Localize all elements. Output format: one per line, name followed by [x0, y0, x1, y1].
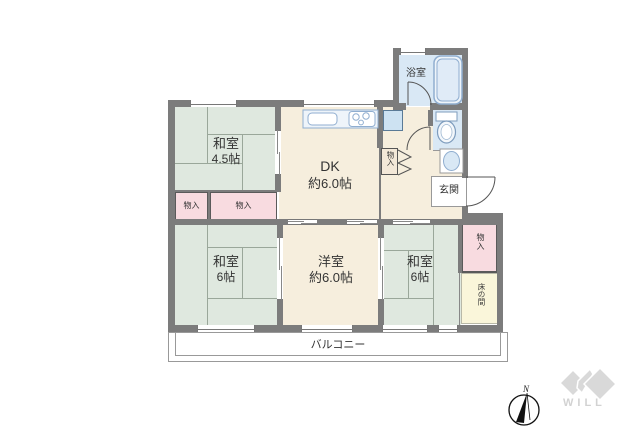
will-logo-mark — [0, 0, 640, 427]
floor-plan: 和室 4.5帖 DK 約6.0帖 浴室 玄関 物入 物入 物入 物入 床の間 和… — [0, 0, 640, 427]
will-logo-text: WILL — [563, 397, 606, 409]
